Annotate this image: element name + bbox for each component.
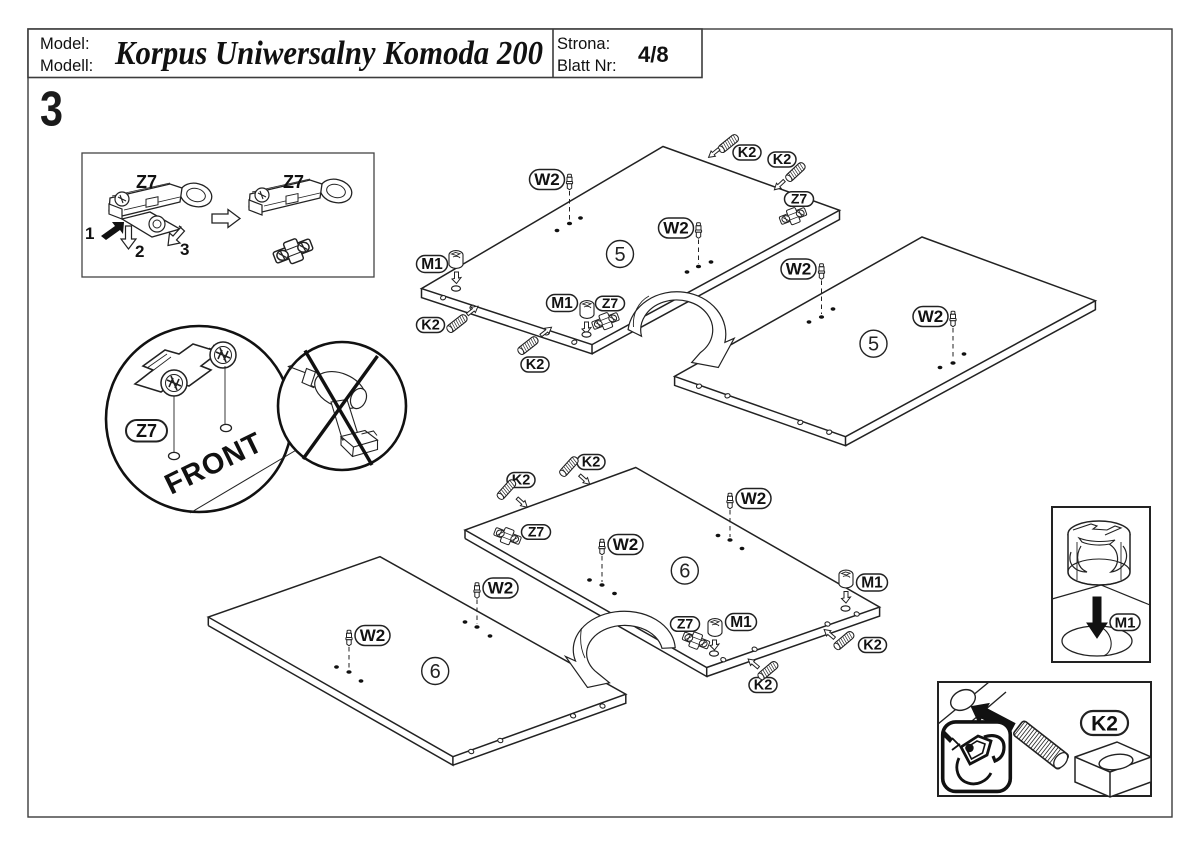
svg-text:6: 6: [679, 561, 690, 583]
svg-text:Modell:: Modell:: [40, 57, 93, 75]
svg-text:5: 5: [868, 334, 879, 356]
svg-text:Z7: Z7: [677, 616, 694, 632]
svg-text:W2: W2: [613, 535, 639, 554]
svg-text:2: 2: [135, 242, 144, 261]
svg-text:W2: W2: [360, 626, 386, 645]
svg-text:Z7: Z7: [283, 172, 304, 192]
svg-text:K2: K2: [1091, 713, 1118, 736]
svg-text:5: 5: [614, 244, 625, 266]
svg-text:W2: W2: [918, 307, 944, 326]
svg-text:Z7: Z7: [602, 295, 619, 311]
svg-text:M1: M1: [861, 575, 883, 592]
svg-text:1: 1: [85, 224, 94, 243]
svg-text:M1: M1: [1115, 615, 1136, 632]
svg-text:K2: K2: [582, 455, 601, 471]
svg-text:M1: M1: [551, 295, 573, 312]
svg-text:Z7: Z7: [136, 172, 157, 192]
svg-text:M1: M1: [421, 256, 443, 273]
svg-text:4/8: 4/8: [638, 42, 669, 67]
svg-text:Model:: Model:: [40, 35, 90, 53]
svg-text:K2: K2: [773, 152, 792, 168]
svg-text:Korpus Uniwersalny Komoda 200: Korpus Uniwersalny Komoda 200: [114, 35, 543, 72]
svg-text:6: 6: [430, 661, 441, 683]
svg-text:M1: M1: [730, 614, 752, 631]
svg-text:W2: W2: [741, 489, 767, 508]
svg-text:3: 3: [40, 83, 63, 137]
svg-text:Strona:: Strona:: [557, 35, 610, 53]
svg-text:K2: K2: [526, 357, 545, 373]
svg-text:W2: W2: [534, 170, 560, 189]
svg-text:W2: W2: [488, 579, 514, 598]
svg-text:Z7: Z7: [136, 421, 157, 441]
svg-text:Z7: Z7: [791, 191, 808, 207]
svg-text:K2: K2: [863, 638, 882, 654]
svg-text:3: 3: [180, 240, 189, 259]
svg-text:W2: W2: [786, 260, 812, 279]
svg-text:K2: K2: [421, 318, 440, 334]
svg-text:W2: W2: [663, 219, 689, 238]
svg-text:K2: K2: [738, 145, 757, 161]
svg-text:Blatt Nr:: Blatt Nr:: [557, 57, 617, 75]
svg-text:Z7: Z7: [528, 524, 545, 540]
